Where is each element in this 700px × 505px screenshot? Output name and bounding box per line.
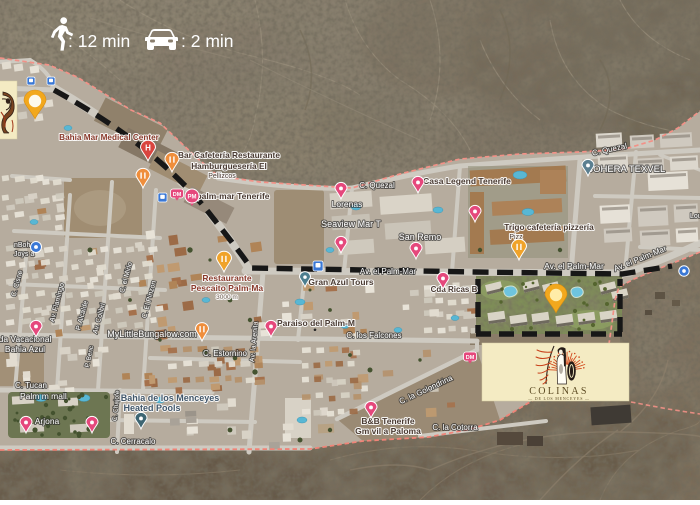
svg-text:Restaurante: Restaurante xyxy=(202,273,251,283)
svg-text:Paraiso del Palm-M: Paraiso del Palm-M xyxy=(277,318,355,328)
svg-text:Cda Ricas B: Cda Ricas B xyxy=(431,285,478,294)
svg-text:Bar Cafetería Restaurante: Bar Cafetería Restaurante xyxy=(178,150,280,160)
svg-text:Gm vil a Paloma: Gm vil a Paloma xyxy=(355,426,421,436)
svg-text:Casa Legend Tenerife: Casa Legend Tenerife xyxy=(423,176,511,186)
svg-text:H: H xyxy=(145,143,151,152)
svg-text:palm-mar Tenerife: palm-mar Tenerife xyxy=(196,191,269,201)
svg-text:Bahia de los Menceyes: Bahia de los Menceyes xyxy=(121,393,220,403)
svg-text:Pescaito Palm-Ma: Pescaito Palm-Ma xyxy=(191,283,264,293)
svg-text:C. los Falcones: C. los Falcones xyxy=(346,331,401,340)
svg-text:Lorenas: Lorenas xyxy=(332,199,363,209)
svg-text:3000 m: 3000 m xyxy=(216,294,238,301)
svg-text:B&B Tenerife: B&B Tenerife xyxy=(361,416,414,426)
svg-text:DM: DM xyxy=(173,192,182,198)
svg-text:Joys a: Joys a xyxy=(14,251,34,258)
svg-text:MyLittleBungalow.com: MyLittleBungalow.com xyxy=(107,329,197,339)
svg-text:Heated Pools: Heated Pools xyxy=(123,403,180,413)
svg-text:PM: PM xyxy=(188,195,197,201)
svg-text:da Vacacional: da Vacacional xyxy=(0,334,51,344)
svg-text:BOHERA TEXVEL: BOHERA TEXVEL xyxy=(587,164,666,175)
svg-text:C. Estornino: C. Estornino xyxy=(203,349,248,358)
svg-text:Av. el Palm-Mar: Av. el Palm-Mar xyxy=(544,261,604,271)
svg-text:Bahia Azul: Bahia Azul xyxy=(5,344,45,354)
svg-text:C. la Cotorra: C. la Cotorra xyxy=(432,423,478,432)
svg-text:: 2 min: : 2 min xyxy=(181,31,234,51)
svg-text:Pellizcos: Pellizcos xyxy=(208,173,236,180)
svg-text:San Remo: San Remo xyxy=(399,232,442,242)
svg-text:Lou M: Lou M xyxy=(690,213,700,220)
svg-text:Hamburguesería El: Hamburguesería El xyxy=(191,161,267,171)
svg-text:Av. el Palm-Mar: Av. el Palm-Mar xyxy=(360,267,416,276)
svg-text:Arjona: Arjona xyxy=(35,416,60,426)
svg-text:Seaview Mar T: Seaview Mar T xyxy=(321,219,381,229)
svg-text:Palm m mall: Palm m mall xyxy=(20,391,67,401)
svg-text:Trigo cafetería pizzería: Trigo cafetería pizzería xyxy=(504,222,594,232)
svg-text:DM: DM xyxy=(466,355,475,361)
svg-text:C. Cerracalo: C. Cerracalo xyxy=(111,437,156,446)
svg-text:Gran Azul Tours: Gran Azul Tours xyxy=(308,277,373,287)
svg-text:C. Tucan: C. Tucan xyxy=(15,381,47,390)
svg-text:: 12 min: : 12 min xyxy=(68,31,130,51)
svg-text:— DE LOS MENCEYES —: — DE LOS MENCEYES — xyxy=(527,396,590,401)
svg-text:C. Quezal: C. Quezal xyxy=(359,181,395,190)
